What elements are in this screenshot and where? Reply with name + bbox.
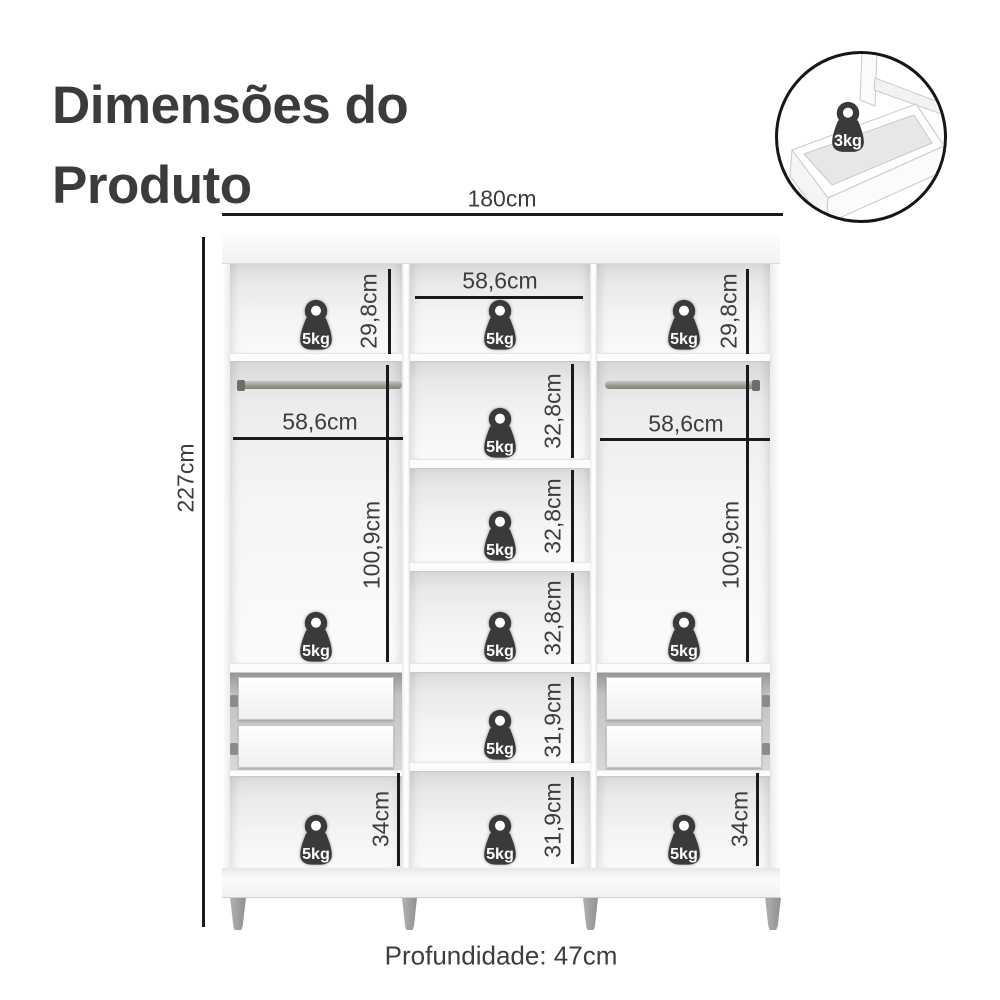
dim-line-mid-bottom [571, 777, 574, 864]
weight-icon: 5kg [473, 510, 527, 562]
dim-label-top-middle-width: 58,6cm [462, 268, 537, 295]
dim-line-mid-shelf2 [571, 470, 574, 562]
dim-line-top-left-29 [388, 269, 391, 354]
dim-line-right-rod-58 [600, 438, 770, 441]
weight-icon: 5kg [657, 299, 711, 351]
dim-label-mid-shelf4-height: 31,9cm [540, 682, 567, 757]
wardrobe-leg [401, 898, 418, 930]
weight-icon: 5kg [473, 709, 527, 761]
shelf-below-left-drawers [230, 770, 402, 777]
dim-line-mid-shelf1 [571, 364, 574, 458]
weight-icon: 5kg [289, 611, 343, 663]
middle-shelf [410, 562, 590, 572]
wardrobe-top-panel [222, 234, 780, 264]
dim-label-mid-shelf1-height: 32,8cm [540, 373, 567, 448]
weight-icon: 5kg [473, 407, 527, 459]
drawer-inset-illustration: 3kg [778, 54, 943, 219]
dim-label-left-hanging-height: 100,9cm [359, 501, 386, 589]
dim-label-depth: Profundidade: 47cm [385, 941, 618, 972]
shelf-above-left-drawers [230, 663, 402, 673]
weight-icon: 5kg [289, 299, 343, 351]
weight-label: 5kg [302, 330, 330, 348]
inset-weight-label: 3kg [834, 132, 862, 150]
dim-label-bottom-left-height: 34cm [368, 791, 395, 847]
vertical-partition [590, 264, 597, 868]
dim-label-top-right-height: 29,8cm [716, 273, 743, 348]
wardrobe-base-panel [222, 868, 780, 898]
vertical-partition [402, 264, 410, 868]
hanging-rod-left-cap [237, 380, 245, 391]
drawer-slide-hardware [230, 695, 238, 707]
wardrobe-left-wall [222, 264, 230, 868]
dim-line-top-right-29 [746, 269, 749, 354]
dim-label-bottom-right-height: 34cm [727, 791, 754, 847]
dim-label-mid-shelf3-height: 32,8cm [540, 580, 567, 655]
page-title-line1: Dimensões do [52, 66, 408, 146]
middle-shelf [410, 762, 590, 772]
drawer-slide-hardware [230, 743, 238, 755]
shelf-above-right-drawers [597, 663, 770, 673]
product-dimensions-diagram: Dimensões do Produto 5kg [0, 0, 1000, 1000]
weight-icon: 5kg [657, 611, 711, 663]
dim-line-bottom-left-34 [397, 773, 400, 866]
dim-line-mid-shelf4 [571, 677, 574, 763]
shelf-below-right-drawers [597, 770, 770, 777]
drawer-front [238, 677, 394, 720]
dim-line-top-middle-58 [415, 296, 583, 299]
dim-label-height: 227cm [173, 443, 200, 512]
dim-line-bottom-right-34 [756, 773, 759, 866]
dim-label-mid-shelf2-height: 32,8cm [540, 478, 567, 553]
drawer-slide-hardware [762, 743, 770, 755]
weight-label: 5kg [302, 845, 330, 863]
weight-label: 5kg [486, 845, 514, 863]
wardrobe-leg [582, 898, 599, 930]
wardrobe-leg [229, 898, 247, 930]
weight-label: 5kg [486, 438, 514, 456]
wardrobe-leg [764, 898, 782, 930]
dim-line-right-hang-100 [746, 365, 749, 662]
weight-label: 5kg [486, 541, 514, 559]
weight-label: 5kg [302, 642, 330, 660]
page-title: Dimensões do Produto [52, 66, 408, 226]
dim-label-top-left-height: 29,8cm [356, 273, 383, 348]
dim-label-right-rod-width: 58,6cm [648, 411, 723, 438]
weight-label: 5kg [486, 330, 514, 348]
dim-label-right-hanging-height: 100,9cm [718, 501, 745, 589]
wardrobe-right-wall [770, 264, 780, 868]
hanging-rod-right-cap [752, 380, 760, 391]
drawer-front [606, 677, 762, 720]
middle-shelf [410, 459, 590, 469]
dim-line-mid-shelf3 [571, 573, 574, 664]
dim-line-left-rod-58 [233, 437, 403, 440]
drawer-capacity-inset: 3kg [775, 51, 947, 223]
weight-label: 5kg [486, 642, 514, 660]
dim-line-left-hang-100 [386, 365, 389, 662]
drawer-slide-hardware [762, 695, 770, 707]
hanging-rod-right [605, 381, 755, 389]
weight-label: 5kg [670, 845, 698, 863]
weight-icon: 5kg [473, 611, 527, 663]
weight-label: 5kg [670, 330, 698, 348]
dim-line-height-227 [202, 237, 205, 927]
weight-icon: 5kg [473, 814, 527, 866]
dim-label-mid-bottom-height: 31,9cm [540, 782, 567, 857]
weight-icon: 3kg [832, 102, 864, 152]
weight-label: 5kg [670, 642, 698, 660]
weight-icon: 5kg [657, 814, 711, 866]
drawer-front [238, 725, 394, 768]
middle-shelf [410, 663, 590, 673]
dim-line-width-180 [222, 213, 783, 216]
drawer-front [606, 725, 762, 768]
weight-icon: 5kg [473, 299, 527, 351]
weight-label: 5kg [486, 740, 514, 758]
weight-icon: 5kg [289, 814, 343, 866]
hanging-rod-left [240, 381, 402, 389]
dim-label-left-rod-width: 58,6cm [282, 409, 357, 436]
shelf-under-top-row [230, 353, 770, 362]
dim-label-width: 180cm [467, 186, 536, 213]
